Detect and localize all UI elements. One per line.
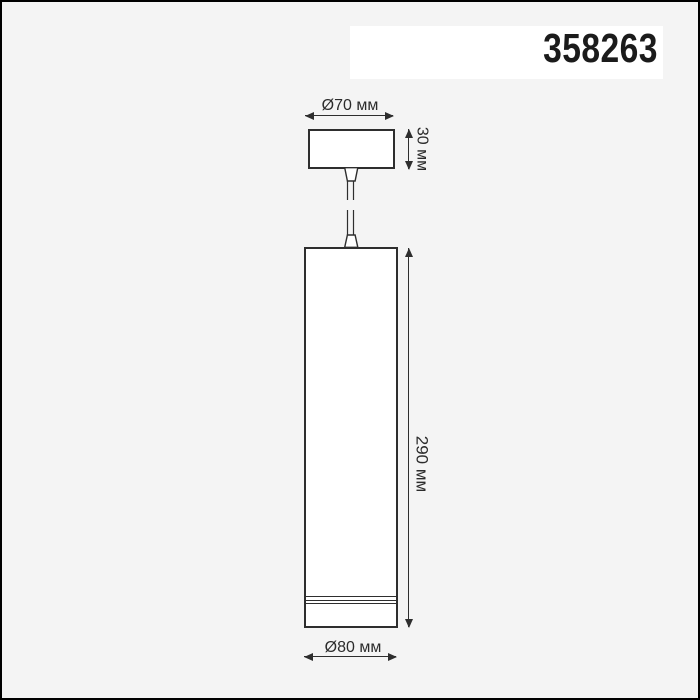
canopy-outline: [308, 129, 395, 169]
dim-label-body-height: 290 мм: [414, 436, 431, 492]
diagram-canvas: 358263 Ø70 мм 30 мм 290 мм Ø80 мм: [0, 0, 700, 700]
product-code: 358263: [543, 28, 658, 69]
dim-label-top-diameter: Ø70 мм: [322, 97, 379, 114]
lamp-body-outline: [304, 247, 398, 628]
dim-arrow-body-height: [408, 248, 409, 627]
product-code-box: 358263: [350, 26, 663, 79]
dim-label-canopy-height: 30 мм: [414, 127, 431, 171]
cord-grip-bottom: [345, 235, 358, 247]
dim-arrow-canopy-height: [408, 129, 409, 169]
suspension-cable-drawing: [338, 167, 364, 248]
cord-grip-top: [345, 168, 358, 181]
dim-arrow-body-diameter: [304, 656, 396, 657]
body-trim-line-upper: [306, 596, 396, 597]
dim-label-body-diameter: Ø80 мм: [325, 639, 382, 656]
dim-arrow-top-diameter: [305, 115, 393, 116]
body-trim-line-lower: [306, 600, 396, 604]
